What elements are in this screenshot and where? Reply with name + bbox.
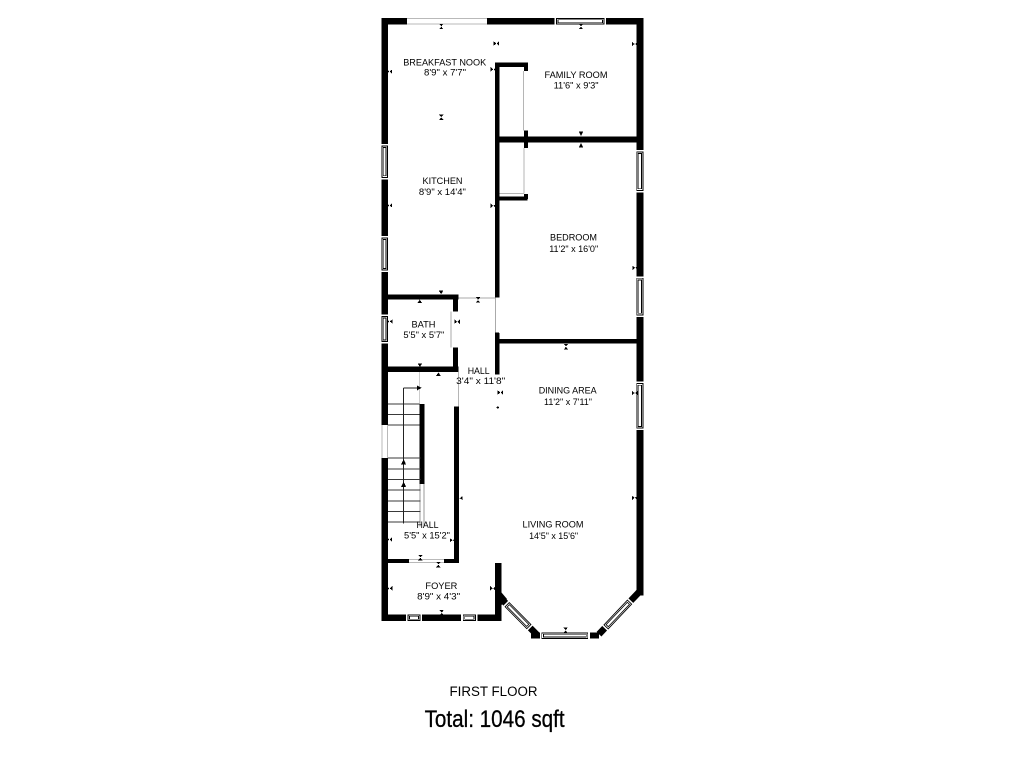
svg-text:FAMILY ROOM: FAMILY ROOM	[545, 70, 608, 81]
svg-text:BEDROOM: BEDROOM	[550, 233, 597, 244]
svg-text:BATH: BATH	[412, 319, 436, 330]
svg-text:11'6" x 9'3": 11'6" x 9'3"	[554, 81, 599, 92]
svg-text:Total: 1046 sqft: Total: 1046 sqft	[425, 706, 565, 733]
svg-text:FOYER: FOYER	[425, 581, 457, 592]
svg-text:11'2" x 7'11": 11'2" x 7'11"	[544, 397, 592, 408]
svg-text:3'4" x 11'8": 3'4" x 11'8"	[456, 376, 505, 387]
svg-text:11'2" x 16'0": 11'2" x 16'0"	[549, 244, 598, 255]
svg-text:14'5" x 15'6": 14'5" x 15'6"	[529, 531, 578, 542]
svg-text:8'9" x 14'4": 8'9" x 14'4"	[419, 187, 466, 198]
svg-text:8'9" x 7'7": 8'9" x 7'7"	[424, 68, 466, 79]
svg-text:5'5" x 5'7": 5'5" x 5'7"	[403, 330, 444, 341]
svg-text:8'9" x 4'3": 8'9" x 4'3"	[417, 592, 460, 603]
svg-text:5'5" x 15'2": 5'5" x 15'2"	[404, 531, 450, 542]
svg-text:DINING AREA: DINING AREA	[539, 386, 598, 397]
svg-text:LIVING ROOM: LIVING ROOM	[523, 520, 584, 531]
svg-text:FIRST FLOOR: FIRST FLOOR	[450, 684, 538, 699]
svg-text:KITCHEN: KITCHEN	[423, 176, 463, 187]
svg-text:HALL: HALL	[417, 520, 439, 531]
svg-text:HALL: HALL	[468, 366, 490, 377]
